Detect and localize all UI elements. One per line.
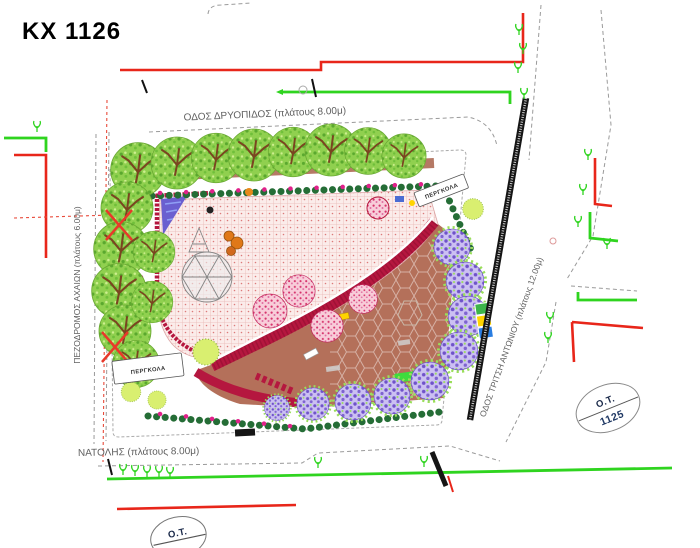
sprout-icon xyxy=(132,465,139,476)
lime-tree xyxy=(121,382,141,402)
sprout-icon xyxy=(515,62,522,73)
red-tick xyxy=(448,476,453,492)
flower-bed-crimson xyxy=(367,197,389,219)
utility-green-bottom xyxy=(107,468,672,479)
utility-red-left xyxy=(14,155,46,258)
sprout-icon xyxy=(575,216,582,227)
utility-green-left xyxy=(4,138,46,152)
sprout-icon xyxy=(547,312,554,323)
sprout-icon xyxy=(421,456,428,467)
utility-red-bottom xyxy=(117,505,296,509)
flower-bed-blue xyxy=(395,196,404,202)
sprout-icon xyxy=(580,184,587,195)
tree-canopy xyxy=(382,134,426,178)
green-arrowhead xyxy=(276,89,283,95)
sprout-icon xyxy=(516,24,523,35)
utility-red-top xyxy=(120,13,523,70)
top-building-outline xyxy=(208,3,252,14)
survey-red-dashed-horizontal xyxy=(14,215,112,218)
equipment-orange-3 xyxy=(227,247,236,256)
sprout-icon xyxy=(144,466,151,477)
block-badge-bottom: Ο.Τ. xyxy=(147,512,210,548)
site-plan-canvas: ΚΧ 1126 xyxy=(0,0,700,548)
right-side-lot-line xyxy=(571,286,637,291)
site-plan-drawing: ΠΕΡΓΚΟΛΑ ΠΕΡΓΚΟΛΑ ΟΔΟΣ ΔΡΥΟΠΙΔΟΣ (πλάτου… xyxy=(0,0,700,548)
bench-black xyxy=(235,428,255,436)
street-label-top: ΟΔΟΣ ΔΡΥΟΠΙΔΟΣ (πλάτους 8.00μ) xyxy=(183,104,346,123)
pink-tree xyxy=(311,310,343,342)
street-edge-bar-small xyxy=(432,452,446,486)
sprout-icon xyxy=(315,457,322,468)
lime-tree xyxy=(463,199,484,220)
equipment-dark xyxy=(207,207,214,214)
sprout-icon xyxy=(585,149,592,160)
utility-red-right-upper xyxy=(595,158,612,206)
sprout-icon xyxy=(545,332,552,343)
pink-tree xyxy=(283,275,315,307)
lime-tree xyxy=(193,339,219,365)
small-circle-marker xyxy=(550,238,556,244)
flower-bed-yellow xyxy=(409,200,415,206)
block-badge-ellipse xyxy=(569,374,647,441)
street-label-left: ΠΕΖΟΔΡΟΜΟΣ ΑΧΑΙΩΝ (πλάτους 6.00μ) xyxy=(72,206,82,364)
pergola-top: ΠΕΡΓΚΟΛΑ xyxy=(414,174,469,207)
lime-tree xyxy=(148,391,166,409)
pink-tree xyxy=(349,285,378,314)
utility-green-top xyxy=(283,92,510,104)
sprout-icon xyxy=(521,88,528,99)
utility-red-right-lower xyxy=(572,322,643,362)
tree-canopy xyxy=(133,231,175,273)
tree-canopy xyxy=(131,281,173,323)
block-badge-1125: Ο.Τ. 1125 xyxy=(569,374,647,441)
sprout-icon xyxy=(156,466,163,477)
street-label-bottom: ΝΑΤΟΛΗΣ (πλάτους 8.00μ) xyxy=(78,445,200,459)
sprout-icon xyxy=(34,121,41,132)
pink-tree xyxy=(253,294,287,328)
equipment-orange-4 xyxy=(245,188,253,196)
right-street-near-edge xyxy=(529,5,541,160)
utility-green-right-lower xyxy=(578,292,637,300)
